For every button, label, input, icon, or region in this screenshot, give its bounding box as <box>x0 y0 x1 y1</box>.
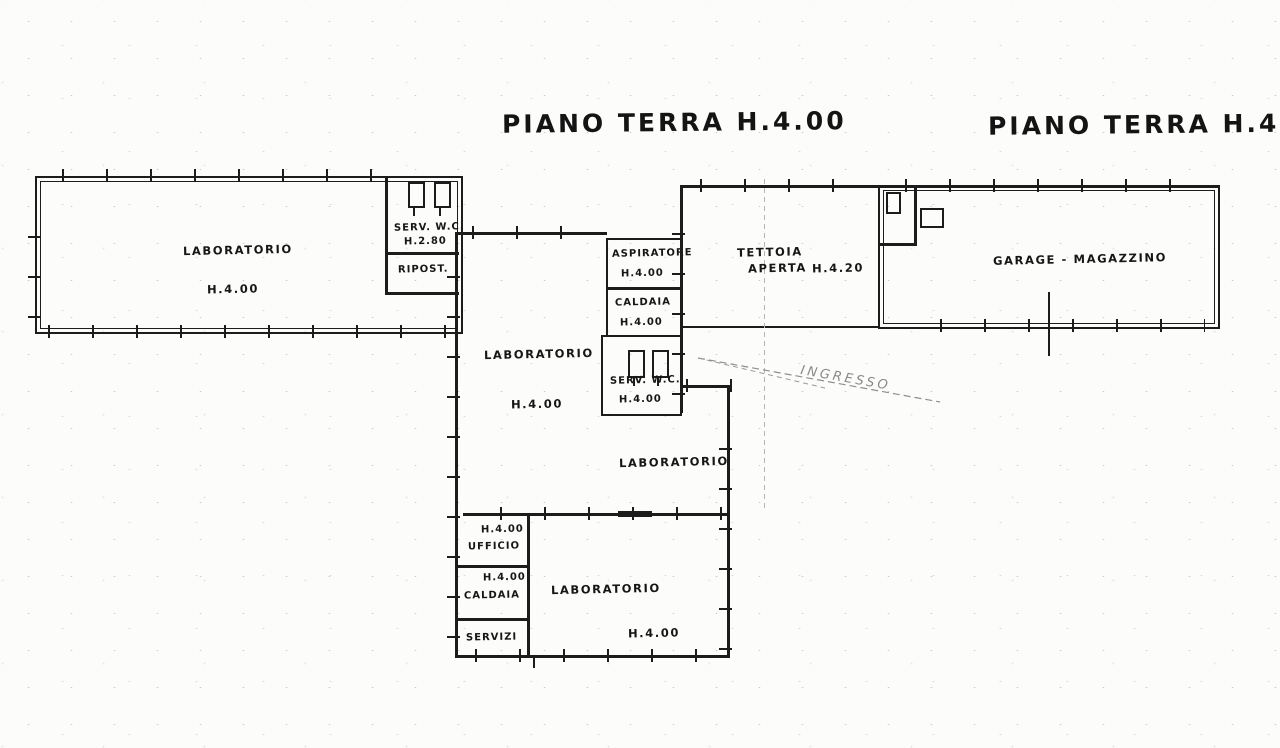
wall-wc-ripost-divider <box>385 252 459 255</box>
room-height-label: H.4.00 <box>483 572 526 584</box>
room-height-label: H.4.00 <box>620 317 663 329</box>
basin-fixture-icon <box>920 208 944 228</box>
room-height-label: H.4.00 <box>628 625 680 640</box>
room-label: TETTOIA <box>737 244 803 259</box>
room-label: SERV. W.C. <box>610 374 681 386</box>
window-ticks-bottom-left-lab <box>48 325 448 338</box>
toilet-fixture-icon <box>408 182 425 208</box>
wall-garage-cubicle-bottom <box>880 243 917 246</box>
room-label: SERVIZI <box>466 631 517 643</box>
toilet-fixture-icon <box>628 350 645 378</box>
window-ticks-bottom-block-bottom <box>475 649 715 662</box>
plan-title-left: PIANO TERRA H.4.00 <box>502 106 847 139</box>
window-ticks-lab-mid-right <box>719 420 732 650</box>
wall-bottom-column-right <box>527 515 530 657</box>
ingresso-label: INGRESSO <box>799 363 891 394</box>
ingresso-sketch: INGRESSO <box>690 340 960 420</box>
window-ticks-left-wall <box>28 200 41 318</box>
floor-plan-sheet: PIANO TERRA H.4.00 PIANO TERRA H.4.20 LA… <box>0 0 1280 748</box>
toilet-fixture-stem <box>413 206 415 216</box>
wall-caldaia-servizi-divider <box>457 618 527 621</box>
window-ticks-central-top <box>472 226 592 239</box>
room-label: LABORATORIO <box>551 581 661 597</box>
room-height-label: H.4.00 <box>511 396 563 411</box>
window-ticks-garage-bottom <box>940 319 1205 332</box>
room-label: APERTA <box>748 260 807 275</box>
room-label: UFFICIO <box>468 540 520 552</box>
wall-ufficio-caldaia-divider <box>457 565 527 568</box>
room-height-label: H.4.00 <box>621 268 664 280</box>
room-label: LABORATORIO <box>484 346 594 362</box>
room-label: LABORATORIO <box>183 242 293 258</box>
section-mark-line <box>1048 292 1050 356</box>
room-height-label: H.2.80 <box>404 236 447 248</box>
room-height-label: H.4.00 <box>619 394 662 406</box>
window-ticks-tettoia-top <box>700 179 870 192</box>
door-tick <box>533 658 535 668</box>
window-ticks-central-left <box>447 258 460 638</box>
window-ticks-central-right <box>672 205 685 395</box>
window-ticks-top-left-lab <box>62 169 392 182</box>
window-ticks-garage-top <box>905 179 1195 192</box>
plan-title-right: PIANO TERRA H.4.20 <box>988 108 1280 141</box>
room-aspiratore-walls <box>606 238 682 289</box>
wall-tettoia-bottom-edge <box>683 326 879 328</box>
room-caldaia-top-walls <box>606 288 682 337</box>
room-label: LABORATORIO <box>619 454 729 470</box>
room-height-label: H.4.00 <box>207 281 259 296</box>
room-label: CALDAIA <box>464 589 520 601</box>
window-ticks-bottom-block-top <box>500 507 725 520</box>
room-height-label: H.4.00 <box>481 524 524 536</box>
toilet-fixture-icon <box>434 182 451 208</box>
room-label: CALDAIA <box>615 296 671 308</box>
toilet-fixture-icon <box>886 192 901 214</box>
toilet-fixture-stem <box>439 206 441 216</box>
wall-garage-cubicle-right <box>914 187 917 245</box>
room-label: RIPOST. <box>398 263 449 275</box>
room-height-label: H.4.20 <box>812 260 864 275</box>
wall-wc-left <box>385 178 388 294</box>
